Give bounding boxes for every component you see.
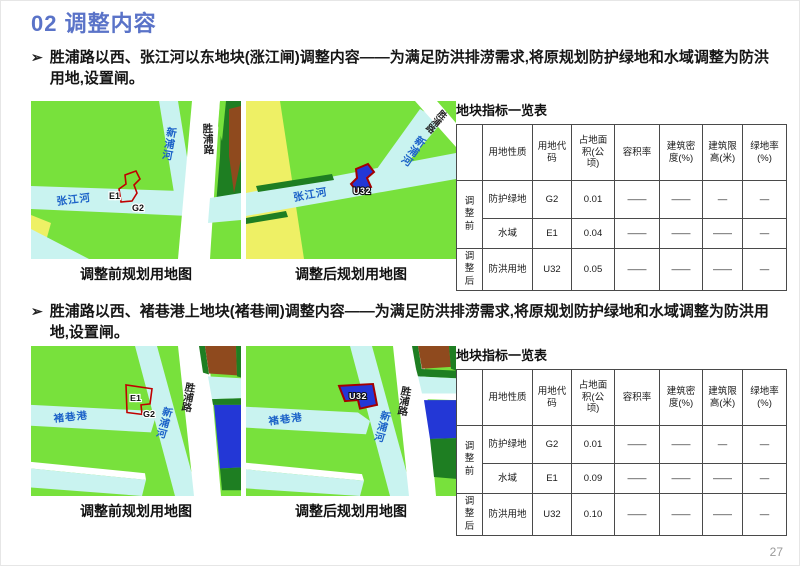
map-before-chuxiang: E1 G2 褚巷港 新浦河 胜浦路 — [31, 346, 241, 496]
water-strip-shape — [208, 376, 241, 399]
cell-density: —— — [660, 464, 703, 494]
bullet-item-1: ➢ 胜浦路以西、张江河以东地块(涨江闸)调整内容——为满足防洪排涝需求,将原规划… — [31, 47, 775, 89]
bullet-text-2: 胜浦路以西、褚巷港上地块(褚巷闸)调整内容——为满足防洪排涝需求,将原规划防护绿… — [50, 301, 775, 343]
map-before-zhangjiang: E1 G2 张江河 新浦河 胜浦路 — [31, 101, 241, 259]
cell-code: G2 — [533, 426, 572, 464]
cell-far: —— — [615, 464, 660, 494]
group-label-before: 调整前 — [457, 426, 483, 494]
cell-far: —— — [615, 249, 660, 291]
cell-nature: 防护绿地 — [483, 426, 533, 464]
brown-land-shape — [418, 346, 451, 369]
cell-density: —— — [660, 219, 703, 249]
parcel-label-u32: U32 — [349, 391, 367, 401]
parcel-label-g2: G2 — [132, 203, 144, 213]
table-title-2: 地块指标一览表 — [456, 345, 790, 364]
map-before-zhangjiang-image: E1 G2 张江河 新浦河 胜浦路 — [31, 101, 241, 259]
cell-nature: 防洪用地 — [483, 249, 533, 291]
indicator-table-section-1: 地块指标一览表 用地性质 用地代码 占地面积(公顷) 容积率 建筑密度(%) 建… — [456, 100, 790, 291]
parcel-label-e1: E1 — [130, 393, 141, 403]
cell-height: —— — [703, 249, 743, 291]
cell-green: — — [743, 181, 787, 219]
cell-height: —— — [703, 494, 743, 536]
map-after-chuxiang-image: U32 褚巷港 新浦河 胜浦路 — [246, 346, 456, 496]
col-header-code: 用地代码 — [533, 370, 572, 426]
cell-height: —— — [703, 219, 743, 249]
col-header-density: 建筑密度(%) — [660, 125, 703, 181]
cell-height: — — [703, 426, 743, 464]
cell-far: —— — [615, 494, 660, 536]
group-label-after: 调整后 — [457, 249, 483, 291]
road-strip-shape — [422, 393, 456, 400]
page-number: 27 — [770, 545, 783, 559]
map-before-chuxiang-image: E1 G2 褚巷港 新浦河 胜浦路 — [31, 346, 241, 496]
cell-green: — — [743, 494, 787, 536]
map-caption-before-2: 调整前规划用地图 — [31, 501, 241, 521]
cell-far: —— — [615, 219, 660, 249]
col-header-green: 绿地率(%) — [743, 370, 787, 426]
col-header-green: 绿地率(%) — [743, 125, 787, 181]
page-title: 02 调整内容 — [31, 6, 157, 38]
group-label-text: 调整后 — [464, 496, 474, 533]
slide: 02 调整内容 ➢ 胜浦路以西、张江河以东地块(涨江闸)调整内容——为满足防洪排… — [0, 0, 800, 566]
map-caption-after-1: 调整后规划用地图 — [246, 264, 456, 284]
col-header-far: 容积率 — [615, 125, 660, 181]
indicator-table-2: 用地性质 用地代码 占地面积(公顷) 容积率 建筑密度(%) 建筑限高(米) 绿… — [456, 369, 787, 536]
cell-nature: 水域 — [483, 464, 533, 494]
cell-code: E1 — [533, 464, 572, 494]
cell-far: —— — [615, 181, 660, 219]
col-header-height: 建筑限高(米) — [703, 370, 743, 426]
parcel-label-u32: U32 — [353, 186, 371, 196]
cell-code: E1 — [533, 219, 572, 249]
group-label-before: 调整前 — [457, 181, 483, 249]
cell-area: 0.01 — [572, 426, 615, 464]
indicator-table-section-2: 地块指标一览表 用地性质 用地代码 占地面积(公顷) 容积率 建筑密度(%) 建… — [456, 345, 790, 536]
cell-nature: 防护绿地 — [483, 181, 533, 219]
cell-height: —— — [703, 464, 743, 494]
table-title-1: 地块指标一览表 — [456, 100, 790, 119]
cell-density: —— — [660, 181, 703, 219]
cell-nature: 水域 — [483, 219, 533, 249]
cell-area: 0.05 — [572, 249, 615, 291]
cell-far: —— — [615, 426, 660, 464]
cell-area: 0.01 — [572, 181, 615, 219]
group-label-text: 调整前 — [464, 196, 474, 233]
corner-cell — [457, 125, 483, 181]
cell-density: —— — [660, 249, 703, 291]
dark-green-land-shape — [220, 468, 241, 491]
cell-density: —— — [660, 426, 703, 464]
group-label-after: 调整后 — [457, 494, 483, 536]
dark-green-land-shape — [430, 438, 456, 479]
cell-nature: 防洪用地 — [483, 494, 533, 536]
bullet-arrow-icon: ➢ — [31, 301, 43, 343]
cell-area: 0.09 — [572, 464, 615, 494]
road-label: 胜浦路 — [201, 122, 215, 156]
cell-green: — — [743, 249, 787, 291]
parcel-label-e1: E1 — [109, 191, 120, 201]
col-header-area: 占地面积(公顷) — [572, 370, 615, 426]
cell-green: — — [743, 464, 787, 494]
cell-density: —— — [660, 494, 703, 536]
col-header-area: 占地面积(公顷) — [572, 125, 615, 181]
cell-area: 0.04 — [572, 219, 615, 249]
brown-land-shape — [205, 346, 237, 375]
bullet-arrow-icon: ➢ — [31, 47, 43, 89]
indicator-table-1: 用地性质 用地代码 占地面积(公顷) 容积率 建筑密度(%) 建筑限高(米) 绿… — [456, 124, 787, 291]
cell-green: — — [743, 426, 787, 464]
col-header-nature: 用地性质 — [483, 125, 533, 181]
group-label-text: 调整前 — [464, 441, 474, 478]
dark-green-strip-shape — [212, 398, 241, 405]
water-strip-shape — [418, 376, 456, 393]
col-header-nature: 用地性质 — [483, 370, 533, 426]
group-label-text: 调整后 — [464, 251, 474, 288]
col-header-height: 建筑限高(米) — [703, 125, 743, 181]
corner-cell — [457, 370, 483, 426]
cell-code: U32 — [533, 494, 572, 536]
col-header-density: 建筑密度(%) — [660, 370, 703, 426]
cell-code: U32 — [533, 249, 572, 291]
bullet-text-1: 胜浦路以西、张江河以东地块(涨江闸)调整内容——为满足防洪排涝需求,将原规划防护… — [50, 47, 775, 89]
map-caption-before-1: 调整前规划用地图 — [31, 264, 241, 284]
col-header-code: 用地代码 — [533, 125, 572, 181]
map-after-zhangjiang: U32 张江河 新浦河 胜浦路 — [246, 101, 456, 259]
map-after-zhangjiang-image: U32 张江河 新浦河 胜浦路 — [246, 101, 456, 259]
cell-code: G2 — [533, 181, 572, 219]
col-header-far: 容积率 — [615, 370, 660, 426]
map-after-chuxiang: U32 褚巷港 新浦河 胜浦路 — [246, 346, 456, 496]
cell-height: — — [703, 181, 743, 219]
cell-area: 0.10 — [572, 494, 615, 536]
cell-green: — — [743, 219, 787, 249]
map-caption-after-2: 调整后规划用地图 — [246, 501, 456, 521]
parcel-label-g2: G2 — [143, 409, 155, 419]
bullet-item-2: ➢ 胜浦路以西、褚巷港上地块(褚巷闸)调整内容——为满足防洪排涝需求,将原规划防… — [31, 301, 775, 343]
